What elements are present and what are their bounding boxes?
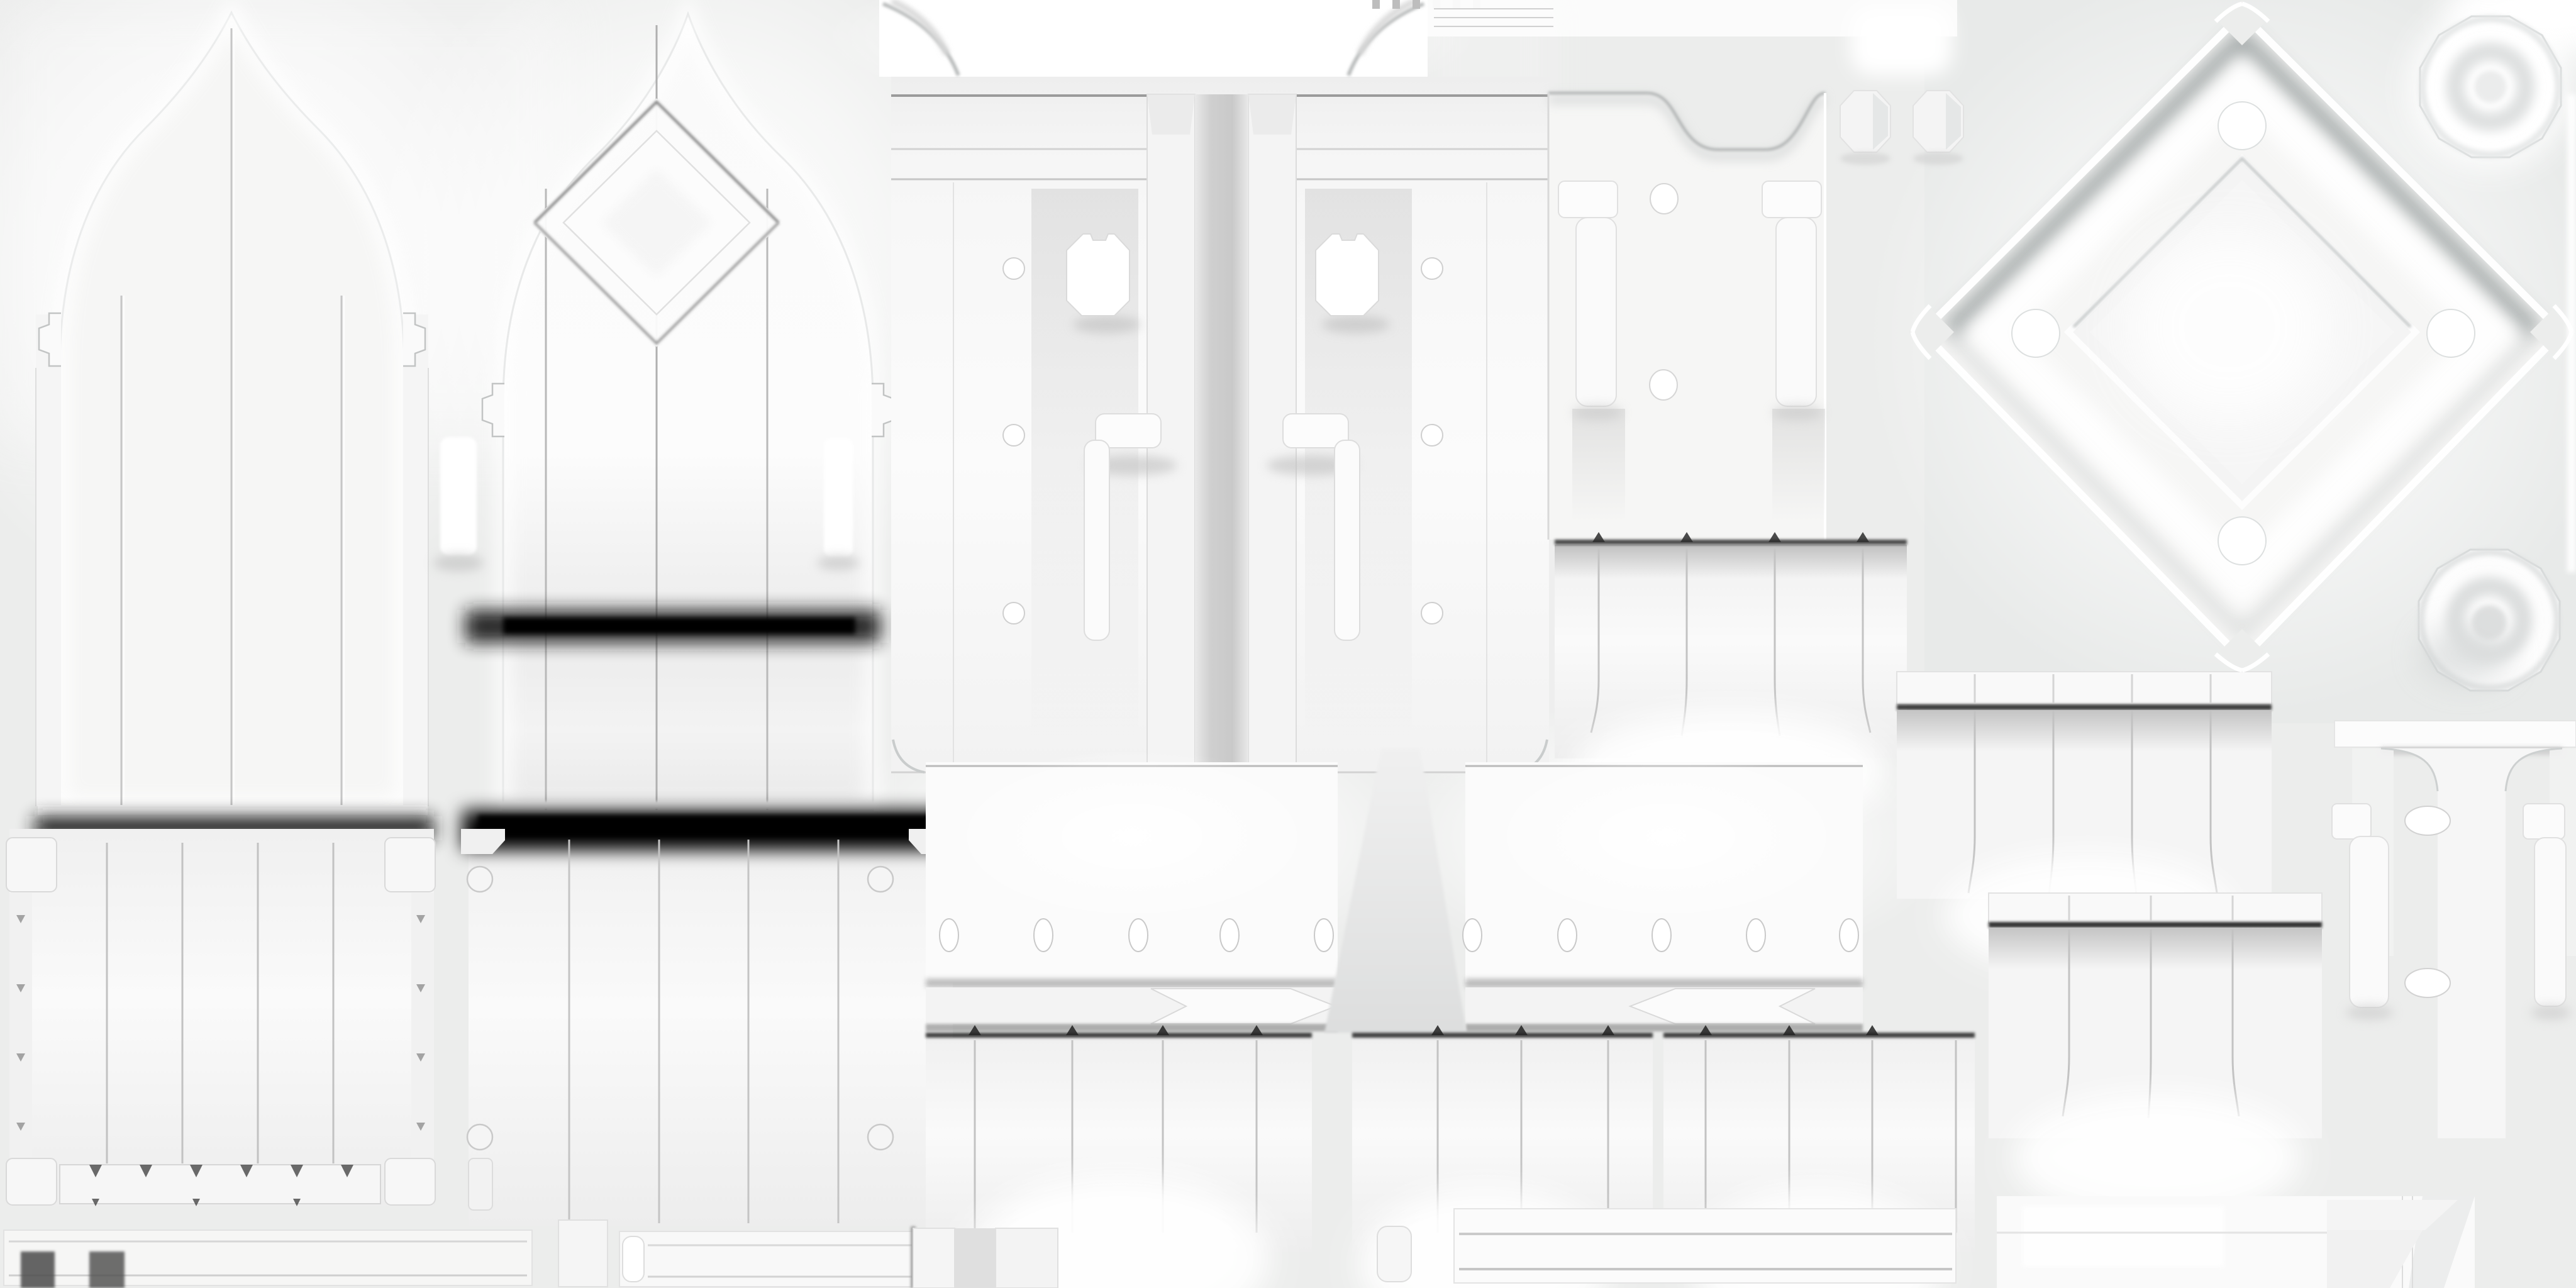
top-shade — [1989, 928, 2322, 969]
door-rivet — [1003, 258, 1024, 279]
ledge-board — [500, 801, 877, 810]
plate-shadow — [1073, 316, 1141, 333]
block — [996, 1228, 1058, 1288]
handle-plate — [1067, 234, 1130, 316]
door-rivet — [1421, 425, 1443, 446]
torus-cap-bottom — [2419, 550, 2560, 691]
panel-glow — [1484, 748, 1849, 924]
highlight-blob — [1850, 6, 1952, 75]
rivet — [1034, 919, 1053, 952]
dark-stub — [89, 1252, 125, 1288]
double-door — [879, 0, 1549, 774]
molding-end-block — [558, 1220, 608, 1287]
pedestal-hole — [2405, 969, 2450, 997]
panel-hole — [1650, 370, 1677, 400]
corner-circle — [2218, 102, 2266, 150]
tick — [1413, 0, 1420, 9]
tab-shadow — [1840, 152, 1890, 165]
pilaster-left — [36, 314, 61, 806]
peg-hole — [467, 1124, 492, 1150]
stile-taper-cap — [1147, 94, 1195, 135]
side-rail-right — [411, 893, 434, 1157]
pilaster-base-shadow — [433, 554, 484, 572]
rail-bottom-groove — [1465, 1024, 1863, 1031]
bracket-row — [60, 1165, 380, 1204]
edge-strip-right — [2567, 94, 2576, 572]
peg-hole — [868, 867, 893, 892]
edge-tab — [469, 1158, 492, 1210]
ledge-board — [38, 805, 428, 815]
molding-body — [4, 1230, 532, 1285]
base-molding-left — [4, 1230, 532, 1288]
bolster-bar — [2534, 838, 2566, 1006]
corner-circle — [2427, 309, 2475, 357]
cap-row — [1897, 672, 2272, 704]
corner-tab — [6, 1158, 57, 1205]
rivet — [1652, 919, 1671, 952]
corner-tab — [6, 838, 57, 892]
bolster-shadow — [2346, 1005, 2394, 1020]
bottom-center-molding — [1377, 1209, 1956, 1283]
corner-circle — [2218, 517, 2266, 565]
pilaster-base-left — [440, 437, 477, 555]
pilaster-right — [403, 314, 428, 806]
door-rivet — [1421, 602, 1443, 624]
rail-bottom-groove — [926, 1024, 1338, 1031]
molding-body — [619, 1231, 915, 1287]
bar-streak — [1772, 409, 1825, 522]
handle-plate — [1316, 234, 1379, 316]
pedestal-hole — [2405, 806, 2450, 835]
peg-hole — [467, 867, 492, 892]
bolster-shadow — [2531, 1005, 2571, 1020]
molding-round-tab — [1377, 1226, 1411, 1282]
door-center-recess — [1195, 94, 1248, 774]
rivet — [940, 919, 958, 952]
corner-tab — [385, 1158, 435, 1205]
top-dark-line — [1555, 540, 1907, 545]
door-handle-stem — [1335, 440, 1360, 640]
rivet — [1463, 919, 1482, 952]
top-dark-line — [1897, 704, 2272, 710]
corner-tab — [385, 838, 435, 892]
rail-groove — [1465, 979, 1863, 987]
torus-center — [2472, 605, 2507, 640]
pilaster-base-right — [824, 438, 853, 557]
texture-atlas — [0, 0, 2576, 1288]
bolster-cap — [2332, 804, 2371, 839]
rivet — [1558, 919, 1577, 952]
panel-hole — [1650, 184, 1678, 214]
block — [913, 1228, 955, 1288]
top-shade — [1555, 545, 1907, 579]
molding-round-tab — [623, 1236, 644, 1282]
rivet — [1840, 919, 1858, 952]
rivet-rail-panel-right — [1463, 748, 1863, 1031]
panel-glow — [943, 748, 1321, 924]
platform-highlight — [2023, 1206, 2224, 1267]
peg-hole — [868, 1124, 893, 1150]
rivet — [1746, 919, 1765, 952]
molding-body — [1454, 1209, 1956, 1283]
cap-row — [1989, 893, 2322, 923]
rivet-rail-panel-left — [926, 748, 1338, 1031]
tick — [1372, 0, 1380, 9]
bottom-small-blocks — [911, 1226, 1058, 1288]
torus-cap-top — [2409, 5, 2572, 169]
pilaster-base-shadow — [817, 555, 860, 570]
hinge-bar — [1576, 218, 1616, 406]
door-lintel — [879, 0, 1480, 77]
bolster-cap — [2523, 804, 2565, 839]
hinge-cap — [1558, 181, 1618, 218]
stile-taper-cap — [1248, 94, 1296, 135]
bar-streak — [1572, 409, 1625, 522]
rivet — [1129, 919, 1148, 952]
lintel-beam — [879, 0, 1428, 77]
corner-circle — [2012, 309, 2060, 357]
mid-shadow-band-core — [503, 618, 855, 634]
hinge-cap — [1762, 181, 1821, 218]
side-rail-left — [9, 893, 32, 1157]
pedestal-ledge — [2334, 721, 2576, 747]
rivet — [1220, 919, 1239, 952]
arch-a-lower-planks — [6, 829, 435, 1206]
plank-field — [9, 829, 434, 1206]
hinge-bar-shadow — [1772, 405, 1823, 420]
tab-shadow — [1913, 152, 1963, 165]
rivet — [1314, 919, 1333, 952]
arch-b-lower-planks — [461, 810, 959, 1226]
dark-stub — [21, 1252, 55, 1288]
door-rivet — [1003, 602, 1024, 624]
scalloped-bracket-panel — [1548, 93, 1825, 540]
door-handle-stem — [1084, 440, 1109, 640]
tick — [1392, 0, 1400, 9]
top-shadow-band-core — [478, 815, 943, 836]
door-rivet — [1003, 425, 1024, 446]
rail-groove — [926, 979, 1338, 987]
torus-center — [2474, 70, 2507, 103]
bolster-bar — [2350, 836, 2389, 1008]
hinge-bar-shadow — [1572, 405, 1623, 420]
plank-panel-k — [1989, 893, 2322, 1220]
inner-diamond-glow — [2129, 233, 2330, 421]
top-shade — [1897, 710, 2272, 752]
plate-shadow — [1322, 316, 1390, 333]
top-dark-line — [1989, 922, 2322, 928]
door-rivet — [1421, 258, 1443, 279]
block-shaded — [955, 1228, 996, 1288]
hinge-bar — [1776, 218, 1816, 406]
